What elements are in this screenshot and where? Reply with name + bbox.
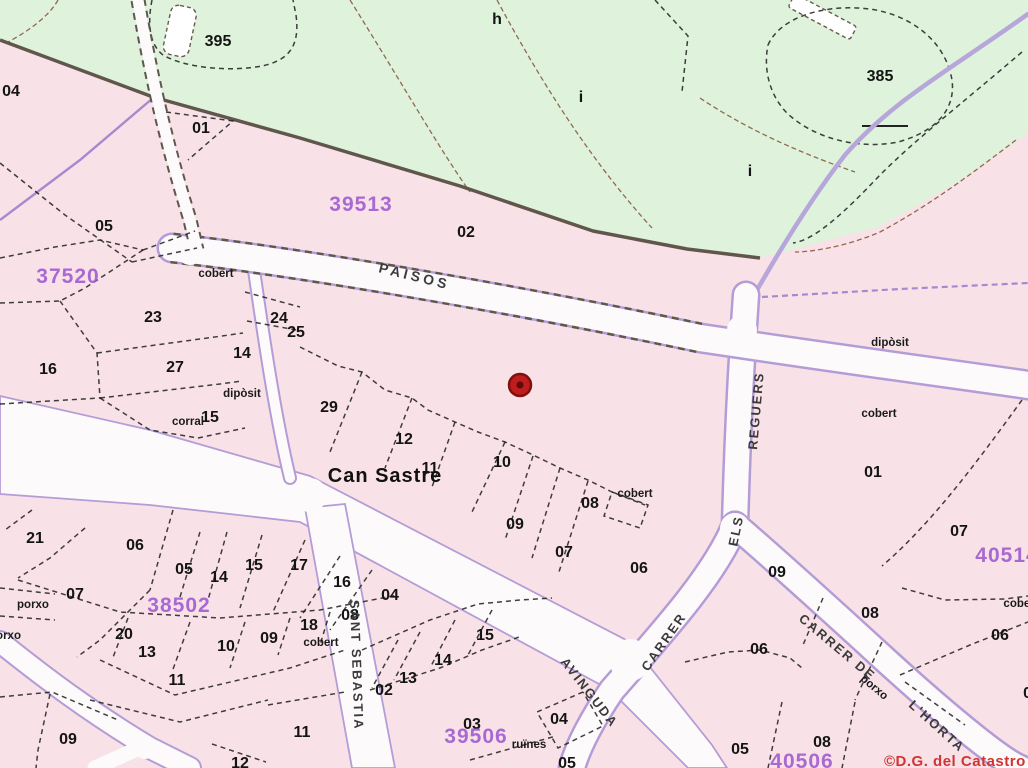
parcel-number: 06 <box>630 560 648 577</box>
parcel-number: 13 <box>138 644 156 661</box>
parcel-number: 25 <box>287 324 305 341</box>
construction-label: cobert <box>861 408 896 420</box>
parcel-number: 23 <box>144 309 162 326</box>
construction-label: cobert <box>1003 598 1028 610</box>
parcel-number: 06 <box>126 537 144 554</box>
parcel-number: 07 <box>950 523 968 540</box>
block-number: 39506 <box>444 725 507 748</box>
parcel-number: 11 <box>169 672 186 689</box>
construction-label: porxo <box>0 630 21 642</box>
construction-label: cobert <box>198 268 233 280</box>
construction-label: cobert <box>617 488 652 500</box>
parcel-number: 04 <box>550 711 568 728</box>
copyright-text: ©D.G. del Catastro <box>884 753 1026 768</box>
parcel-number: 05 <box>95 218 113 235</box>
parcel-number: 20 <box>115 626 133 643</box>
parcel-number: 01 <box>864 464 882 481</box>
parcel-number: 24 <box>270 310 288 327</box>
parcel-number: 07 <box>66 586 84 603</box>
place-name-label: Can Sastre <box>328 465 443 487</box>
rural-parcel-label: 385 <box>867 68 894 85</box>
parcel-number: 01 <box>192 120 210 137</box>
parcel-number: 17 <box>290 557 308 574</box>
rural-parcel-label: i <box>748 163 752 180</box>
parcel-number: 06 <box>750 641 768 658</box>
parcel-number: 16 <box>333 574 351 591</box>
parcel-number: 07 <box>555 544 573 561</box>
parcel-number: 14 <box>210 569 228 586</box>
parcel-number: 12 <box>395 431 413 448</box>
parcel-number: 08 <box>813 734 831 751</box>
parcel-number: 18 <box>300 617 318 634</box>
parcel-number: 16 <box>39 361 57 378</box>
block-number: 40514 <box>975 544 1028 567</box>
parcel-number: 05 <box>731 741 749 758</box>
block-number: 40506 <box>770 750 833 768</box>
parcel-number: 09 <box>260 630 278 647</box>
parcel-number: 13 <box>399 670 417 687</box>
parcel-number: 02 <box>375 682 393 699</box>
block-number: 39513 <box>329 193 392 216</box>
parcel-number: 14 <box>233 345 251 362</box>
rural-parcel-label: h <box>492 11 502 28</box>
map-marker <box>509 374 531 396</box>
parcel-number: 12 <box>231 755 249 768</box>
parcel-number: 27 <box>166 359 184 376</box>
parcel-number: 14 <box>434 652 452 669</box>
parcel-number: 08 <box>861 605 879 622</box>
rural-parcel-label: 395 <box>205 33 232 50</box>
construction-label: dipòsit <box>871 337 909 349</box>
construction-label: ruïnes <box>512 739 547 751</box>
block-number: 38502 <box>147 594 210 617</box>
construction-label: porxo <box>17 599 49 611</box>
parcel-number: 15 <box>245 557 263 574</box>
parcel-number: 10 <box>217 638 235 655</box>
parcel-number: 09 <box>59 731 77 748</box>
cadastral-map: 395hi385i0401050223242514162715291211100… <box>0 0 1028 768</box>
construction-label: cobert <box>303 637 338 649</box>
parcel-number: 09 <box>768 564 786 581</box>
parcel-number: 05 <box>175 561 193 578</box>
parcel-number: 04 <box>381 587 399 604</box>
parcel-number: 08 <box>1023 685 1028 702</box>
parcel-number: 05 <box>558 755 576 768</box>
block-number: 37520 <box>36 265 99 288</box>
parcel-number: 06 <box>991 627 1009 644</box>
map-canvas[interactable]: 395hi385i0401050223242514162715291211100… <box>0 0 1028 768</box>
parcel-number: 11 <box>294 724 311 741</box>
parcel-number: 10 <box>493 454 511 471</box>
parcel-number: 08 <box>581 495 599 512</box>
parcel-number: 29 <box>320 399 338 416</box>
parcel-number: 09 <box>506 516 524 533</box>
construction-label: dipòsit <box>223 388 261 400</box>
parcel-number: 21 <box>26 530 44 547</box>
rural-parcel-label: i <box>579 89 583 106</box>
parcel-number: 02 <box>457 224 475 241</box>
construction-label: corral <box>172 416 204 428</box>
parcel-number: 15 <box>476 627 494 644</box>
parcel-number: 04 <box>2 83 20 100</box>
